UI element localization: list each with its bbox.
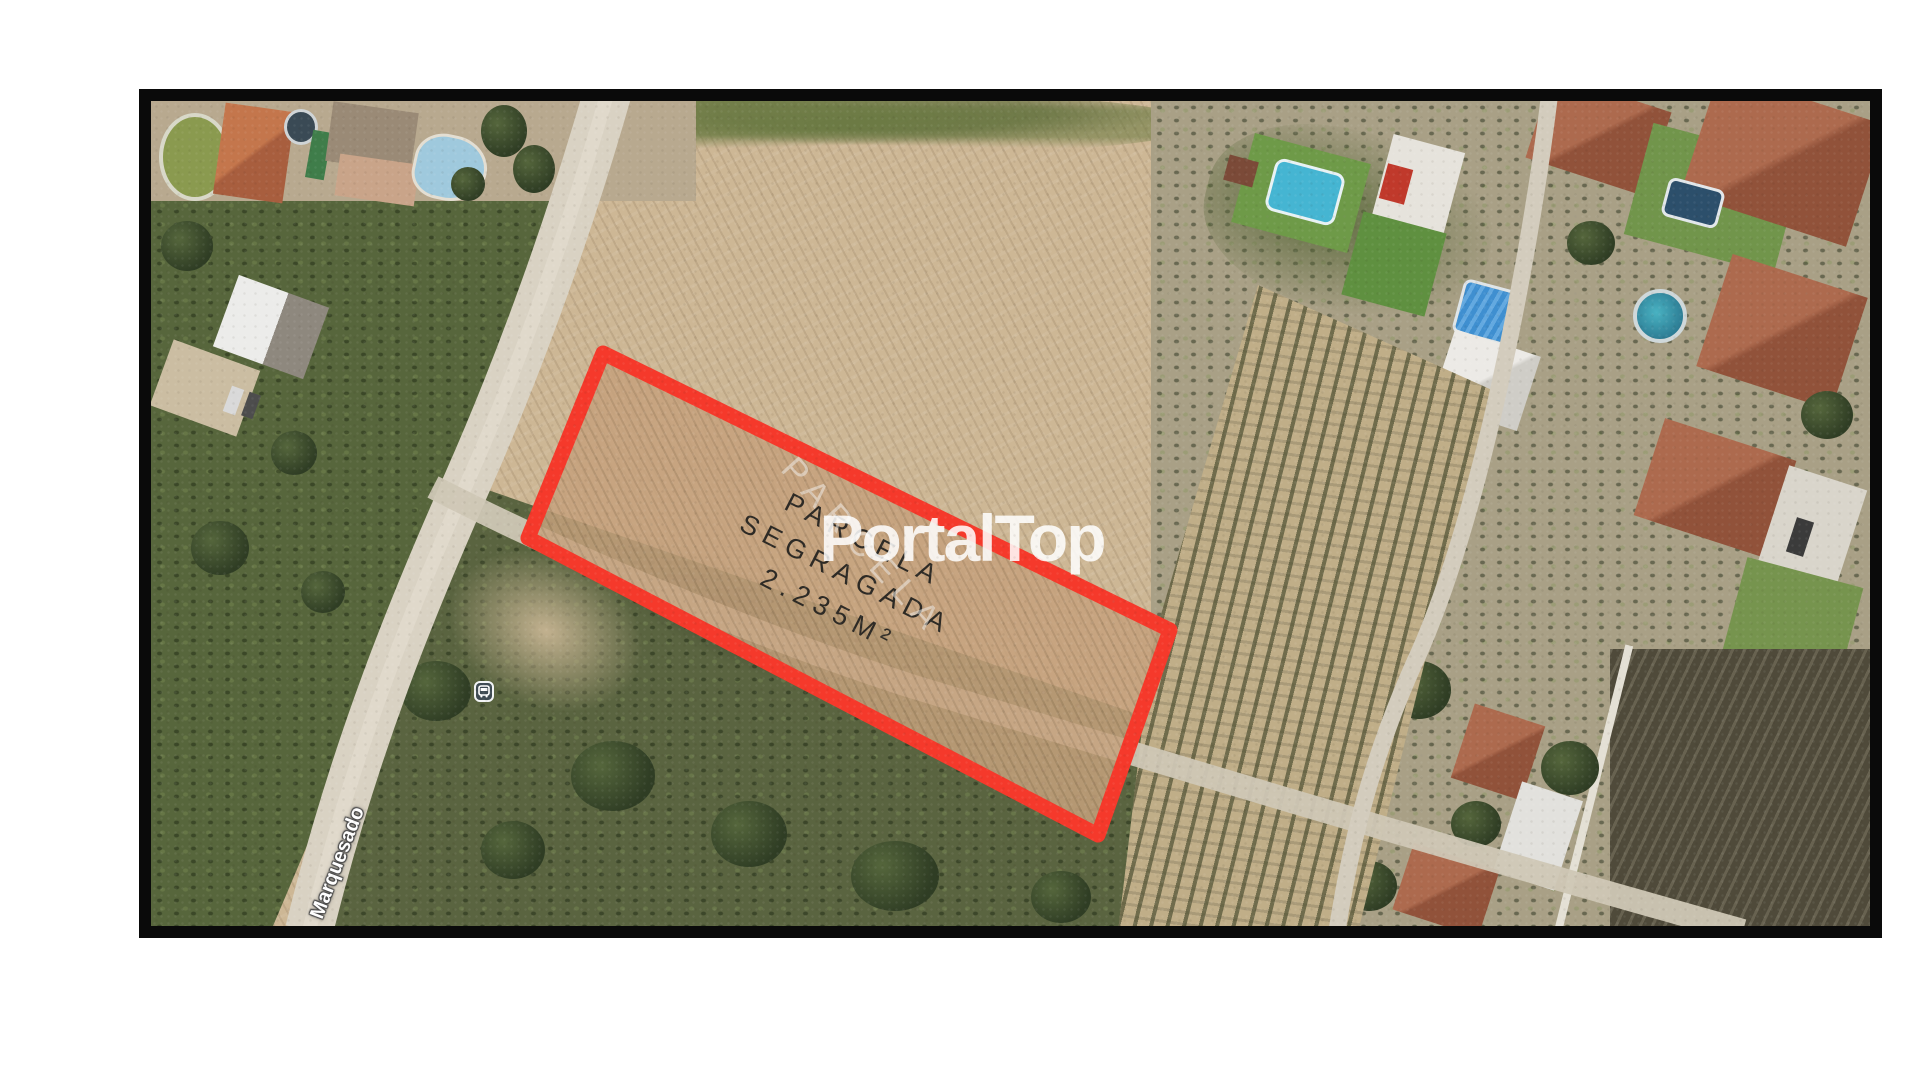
photo-frame: PARCELA SEGRAGADA 2.235M² PARCELA Marque… (139, 89, 1882, 938)
page-canvas: PARCELA SEGRAGADA 2.235M² PARCELA Marque… (0, 0, 1920, 1080)
watermark: PortalTop (819, 500, 1104, 576)
aerial-photo: PARCELA SEGRAGADA 2.235M² PARCELA Marque… (151, 101, 1870, 926)
